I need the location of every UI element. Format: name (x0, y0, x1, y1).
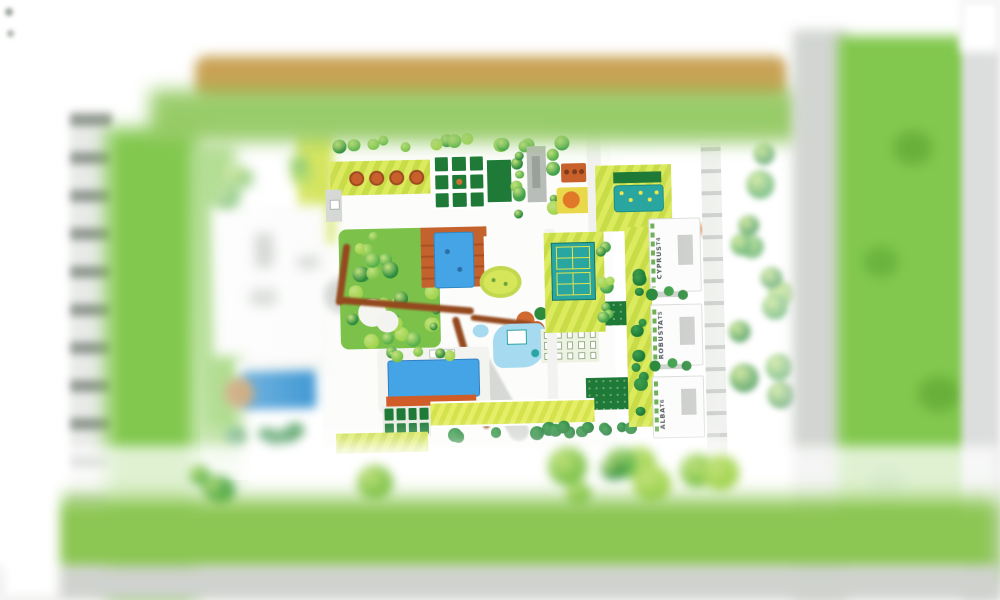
pool-lounger-dot (639, 191, 643, 195)
tree (382, 262, 399, 279)
field-shrub (863, 246, 899, 278)
field-shrub (918, 376, 960, 412)
hedge-shrub (634, 377, 648, 391)
tree (429, 322, 437, 330)
poolside-trees (379, 344, 489, 364)
tree (368, 232, 378, 242)
orange-trellis-pavilion (561, 163, 586, 183)
tree (189, 465, 209, 485)
play-structure (563, 191, 580, 208)
hedge-shrub (633, 272, 647, 286)
hedge-parterre-cell (452, 157, 466, 171)
north-green-fringe (150, 90, 800, 142)
link-tree (646, 288, 658, 300)
splash-pool-hedge (613, 171, 661, 183)
kids-play-court (556, 187, 591, 214)
hedge-shrub (631, 363, 640, 372)
hedge-parterre-cell (435, 175, 449, 189)
tree (515, 170, 524, 179)
lawn-speckle (504, 282, 508, 286)
tree (598, 311, 610, 323)
trellis-dot (572, 169, 577, 174)
trellis-dot (579, 169, 584, 174)
court-tree-column (595, 233, 617, 333)
fountain-dot (457, 179, 462, 185)
tree (605, 276, 615, 286)
water-garden (493, 323, 546, 368)
sun-lounger (578, 341, 585, 348)
pool-float (445, 249, 450, 254)
tree (413, 347, 424, 358)
hedge-parterre-cell (453, 193, 467, 207)
pool-float (457, 267, 462, 272)
tree (367, 265, 382, 280)
tree (346, 313, 359, 326)
haze-east (660, 100, 810, 470)
hedge-parterre-cell (436, 193, 450, 207)
hedge-shrub (636, 406, 646, 416)
tree (546, 161, 560, 175)
tree (515, 151, 525, 161)
tree (382, 333, 394, 345)
court-markings (556, 272, 591, 296)
corner-mark (5, 8, 13, 16)
tree (391, 350, 403, 362)
sun-lounger (567, 342, 574, 349)
south-green-band (40, 498, 1000, 576)
tree (513, 209, 523, 219)
trellis-dot (564, 169, 569, 174)
tree (357, 465, 393, 501)
hedge-parterre-cell (452, 175, 466, 189)
parterre-hedge-grid (433, 154, 486, 209)
hedge-shrub (633, 350, 646, 363)
lap-pool (387, 358, 480, 398)
hedge-parterre-cell (469, 156, 483, 170)
pool-lounger-dot (629, 198, 633, 202)
hedge-parterre-cell (470, 192, 484, 206)
tree (354, 243, 365, 254)
sun-lounger (578, 352, 585, 359)
clubhouse-building (527, 146, 547, 202)
tree (435, 348, 445, 358)
blurred-masterplan-screenshot: CYPRUS T4 ROBUSTA T5 (0, 0, 1000, 600)
hedge-shrub (635, 287, 644, 296)
tree (548, 447, 587, 486)
clubhouse-roof-core (532, 156, 541, 188)
sun-lounger (590, 341, 597, 348)
far-right-white-corner (960, 0, 1000, 52)
south-left-white (0, 430, 60, 600)
water-accent (531, 349, 539, 357)
hedge-parterre-cell (470, 174, 484, 188)
tree (365, 252, 381, 268)
field-shrub (893, 131, 933, 165)
main-pool-deck-left (421, 235, 435, 287)
splash-pool-teal (613, 184, 664, 212)
hedge-parterre-cell (435, 157, 449, 171)
link-tree (649, 360, 660, 371)
tree (601, 457, 625, 481)
sun-lounger (567, 352, 574, 359)
pool-lounger-dot (655, 190, 659, 194)
main-pool (433, 232, 474, 289)
tennis-court (551, 242, 596, 301)
court-markings (556, 246, 591, 270)
lawn-speckle (492, 278, 496, 282)
tree (595, 246, 606, 257)
sun-lounger (590, 351, 597, 358)
hedge-shrub (631, 325, 644, 338)
pool-lounger-dot (620, 191, 624, 195)
tree (546, 149, 558, 161)
tree (444, 350, 456, 362)
corner-mark (7, 30, 14, 37)
tree (363, 334, 379, 350)
tree (702, 455, 738, 491)
south-boundary-road (0, 566, 1000, 600)
pool-lounger-dot (648, 198, 652, 202)
cabana (507, 329, 527, 344)
